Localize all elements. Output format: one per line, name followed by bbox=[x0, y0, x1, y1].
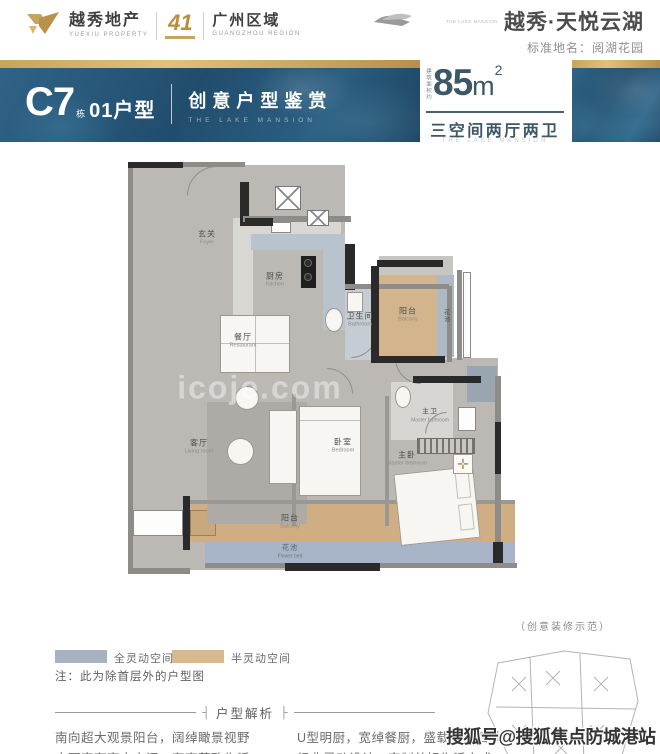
banner-blue-right bbox=[572, 68, 660, 142]
area-label: 建筑面积约 bbox=[424, 68, 432, 102]
wall bbox=[285, 563, 380, 571]
room-label-balcony-top: 阳台Balcony bbox=[398, 307, 418, 324]
floor-utility-box bbox=[467, 366, 497, 402]
anniversary-number: 41 bbox=[168, 12, 192, 34]
compass-icon: ✛ bbox=[453, 454, 473, 474]
header-divider-2 bbox=[203, 12, 204, 40]
master-toilet bbox=[395, 386, 411, 408]
wall bbox=[457, 270, 462, 360]
banner-slogan-en: THE LAKE MANSION bbox=[188, 117, 332, 124]
unit-type: 01户型 bbox=[89, 94, 155, 123]
wall bbox=[447, 286, 452, 362]
room-label-balcony-bottom: 阳台Balcony bbox=[280, 514, 300, 531]
anniversary-badge: 41 bbox=[165, 12, 195, 39]
area-value: 85 bbox=[433, 62, 472, 103]
project-standard-name: 标准地名：阅湖花园 bbox=[372, 39, 644, 56]
room-label-master-bathroom: 主卫Master bathroom bbox=[411, 409, 449, 424]
shaft-box bbox=[307, 210, 329, 226]
legend-label-half-flex: 半灵动空间 bbox=[231, 650, 291, 666]
room-label-flowerbed-bottom: 花池Flower bed bbox=[278, 545, 303, 560]
kitchen-counter-left bbox=[233, 234, 253, 328]
layout-text-en: THE LAKE MANSION bbox=[424, 138, 566, 144]
area-unit: m bbox=[472, 71, 495, 101]
header-divider bbox=[156, 12, 157, 40]
wall bbox=[183, 496, 190, 550]
room-label-bathroom: 卫生间Bathroom bbox=[347, 312, 374, 329]
area-block: 建筑面积约 85m2 三空间两厅两卫 THE LAKE MANSION bbox=[424, 62, 572, 148]
wall bbox=[345, 284, 449, 289]
rule-left bbox=[55, 712, 196, 713]
area-rule bbox=[426, 111, 564, 113]
brand-name: 越秀地产 bbox=[69, 12, 148, 30]
banner-gold-bar-left bbox=[0, 60, 420, 68]
wall bbox=[245, 218, 273, 226]
exterior-box bbox=[133, 510, 183, 536]
sofa bbox=[269, 410, 297, 484]
wall bbox=[128, 162, 133, 572]
brand-name-en: YUEXIU PROPERTY bbox=[69, 32, 148, 39]
kitchen-worktop bbox=[251, 234, 345, 250]
analysis-header: ┤ 户型解析 ├ bbox=[55, 703, 435, 722]
stove bbox=[301, 256, 316, 288]
wall bbox=[128, 162, 183, 168]
yuexiu-logo-icon bbox=[25, 8, 61, 43]
header-brand-left: 越秀地产 YUEXIU PROPERTY 41 广州区域 GUANGZHOU R… bbox=[25, 8, 301, 43]
legend-swatch-half-flex bbox=[172, 650, 224, 663]
rule-right bbox=[294, 712, 435, 713]
poster-page: 越秀地产 YUEXIU PROPERTY 41 广州区域 GUANGZHOU R… bbox=[0, 0, 660, 754]
project-name: 越秀·天悦云湖 bbox=[504, 6, 644, 36]
floor-plan: ✛ 玄关Foyer 厨房Kitchen 卫生间Bathroom 餐厅Restau… bbox=[95, 160, 520, 615]
lake-mansion-logo-icon bbox=[372, 8, 440, 35]
coffee-table bbox=[227, 438, 254, 465]
region-name: 广州区域 bbox=[212, 13, 300, 30]
room-label-dining: 餐厅Restaurant bbox=[230, 333, 257, 350]
bracket-right: ├ bbox=[280, 707, 288, 719]
legend-swatch-full-flex bbox=[55, 650, 107, 663]
wall bbox=[413, 376, 481, 383]
legend-note: 注：此为除首层外的户型图 bbox=[55, 668, 205, 684]
cabinet bbox=[458, 407, 476, 431]
region-name-en: GUANGZHOU REGION bbox=[212, 31, 300, 38]
banner-divider bbox=[171, 84, 172, 124]
header-brand-right: THE LAKE MANSION 越秀·天悦云湖 标准地名：阅湖花园 bbox=[372, 6, 644, 56]
wall bbox=[371, 356, 445, 363]
banner-slogan: 创意户型鉴赏 bbox=[188, 87, 332, 113]
banner-gold-bar-right bbox=[572, 60, 660, 68]
legend-label-full-flex: 全灵动空间 bbox=[114, 650, 174, 666]
wall bbox=[183, 162, 245, 167]
analysis-title: 户型解析 bbox=[216, 703, 274, 722]
railing bbox=[463, 272, 471, 358]
room-label-bedroom: 卧室Bedroom bbox=[332, 438, 354, 455]
photo-watermark: icoje.com bbox=[177, 370, 343, 407]
wall bbox=[128, 568, 190, 574]
unit-code-suffix: 栋 bbox=[76, 107, 85, 120]
room-label-foyer: 玄关Foyer bbox=[198, 230, 216, 247]
toilet bbox=[325, 308, 343, 332]
bathroom-sink bbox=[347, 292, 363, 312]
room-label-kitchen: 厨房Kitchen bbox=[266, 272, 284, 289]
master-bed bbox=[393, 466, 480, 546]
room-label-living: 客厅Living room bbox=[185, 439, 213, 456]
wall bbox=[495, 422, 501, 474]
analysis-point: 大面宽奢享大空间，奢享菁致生活 bbox=[55, 748, 297, 754]
room-label-flowerbed-right: 花池 bbox=[441, 309, 449, 323]
floor-flowerbed-bottom bbox=[205, 542, 515, 564]
deco-label: （创意装修示范） bbox=[468, 618, 658, 633]
anniversary-bar bbox=[165, 36, 195, 39]
sohu-watermark: 搜狐号@搜狐焦点防城港站 bbox=[446, 723, 656, 749]
logo-caption: THE LAKE MANSION bbox=[446, 19, 498, 24]
room-label-master-bedroom: 主卧Master bedroom bbox=[387, 451, 427, 468]
analysis-point: 南向超大观景阳台，阔绰瞰景视野 bbox=[55, 727, 297, 746]
area-sup: 2 bbox=[495, 62, 503, 78]
bracket-left: ┤ bbox=[202, 707, 210, 719]
unit-code: C7 bbox=[25, 82, 74, 122]
shaft-box bbox=[275, 186, 301, 210]
banner-blue-left: C7 栋 01户型 创意户型鉴赏 THE LAKE MANSION bbox=[0, 68, 420, 142]
kitchen-sink bbox=[271, 222, 291, 233]
wall bbox=[377, 260, 443, 267]
